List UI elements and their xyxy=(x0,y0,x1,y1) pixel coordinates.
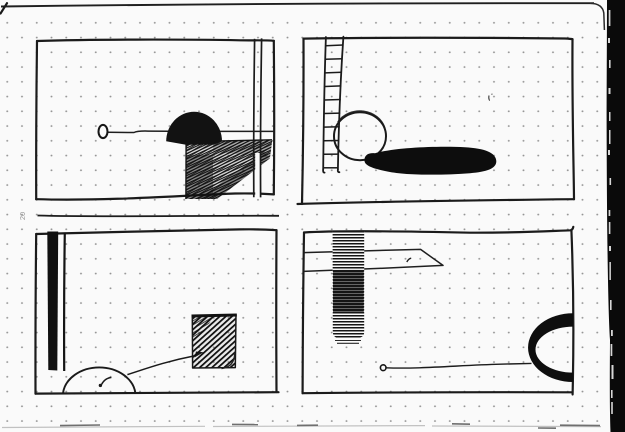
svg-text:20: 20 xyxy=(18,212,27,220)
